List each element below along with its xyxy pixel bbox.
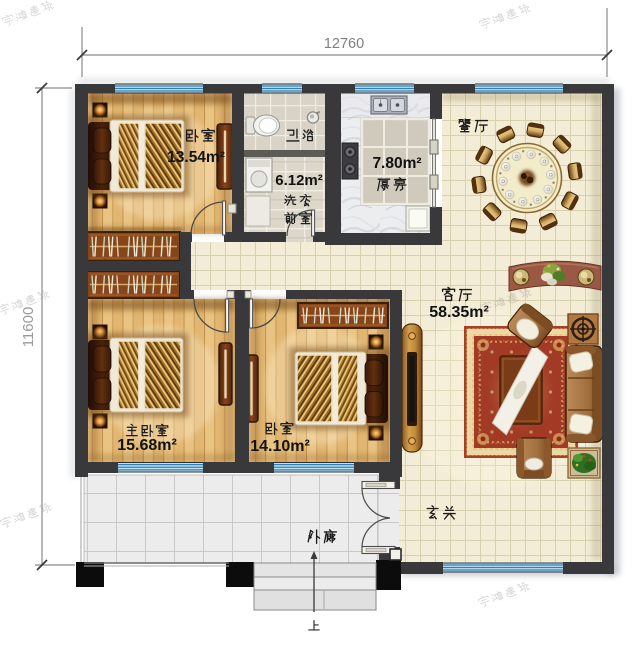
svg-text:14.10m²: 14.10m² <box>250 438 310 455</box>
svg-text:7.80m²: 7.80m² <box>372 155 421 172</box>
svg-text:6.12m²: 6.12m² <box>275 172 323 189</box>
svg-text:15.68m²: 15.68m² <box>117 437 177 454</box>
svg-text:11600: 11600 <box>20 307 37 348</box>
svg-text:13.54m²: 13.54m² <box>167 149 225 166</box>
svg-text:58.35m²: 58.35m² <box>429 304 489 321</box>
svg-text:12760: 12760 <box>324 36 364 52</box>
